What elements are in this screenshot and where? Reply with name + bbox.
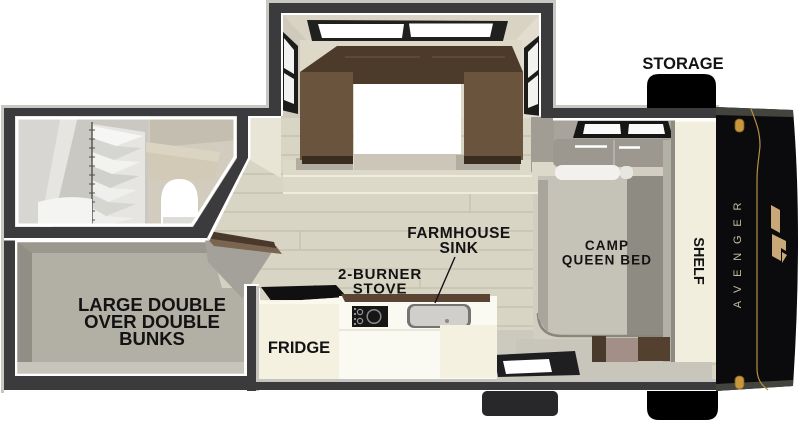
svg-text:QUEEN BED: QUEEN BED xyxy=(562,253,652,268)
svg-text:FRIDGE: FRIDGE xyxy=(268,339,330,357)
svg-text:BUNKS: BUNKS xyxy=(119,328,185,349)
svg-text:SHELF: SHELF xyxy=(690,237,706,285)
svg-text:AVENGER: AVENGER xyxy=(732,194,744,309)
svg-text:STORAGE: STORAGE xyxy=(642,55,723,73)
svg-text:STOVE: STOVE xyxy=(353,281,408,298)
svg-text:CAMP: CAMP xyxy=(585,238,629,253)
svg-text:SINK: SINK xyxy=(439,240,478,257)
